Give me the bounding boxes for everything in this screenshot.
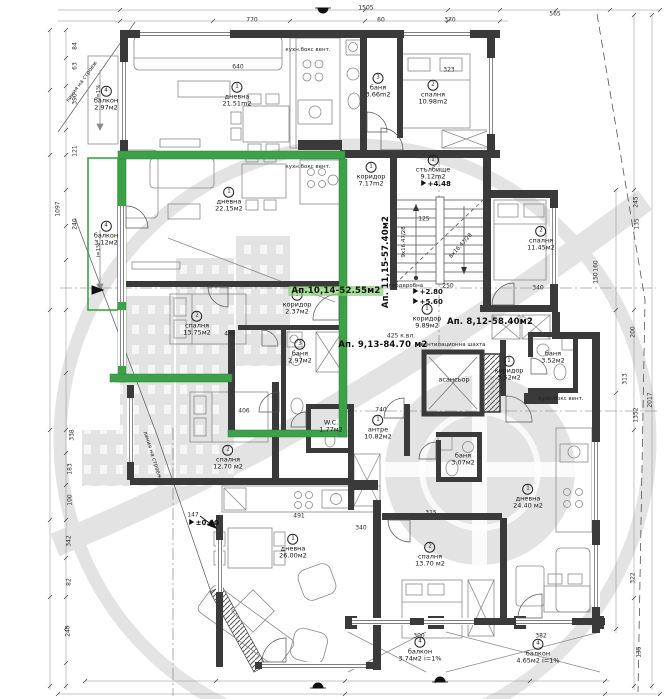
vent-shaft <box>482 354 500 412</box>
floor-plan-canvas: 1дневна21.51m23баня3.66m22спалня10.98m21… <box>0 0 664 699</box>
staircase <box>395 197 485 284</box>
floor-plan-drawing <box>0 0 664 699</box>
